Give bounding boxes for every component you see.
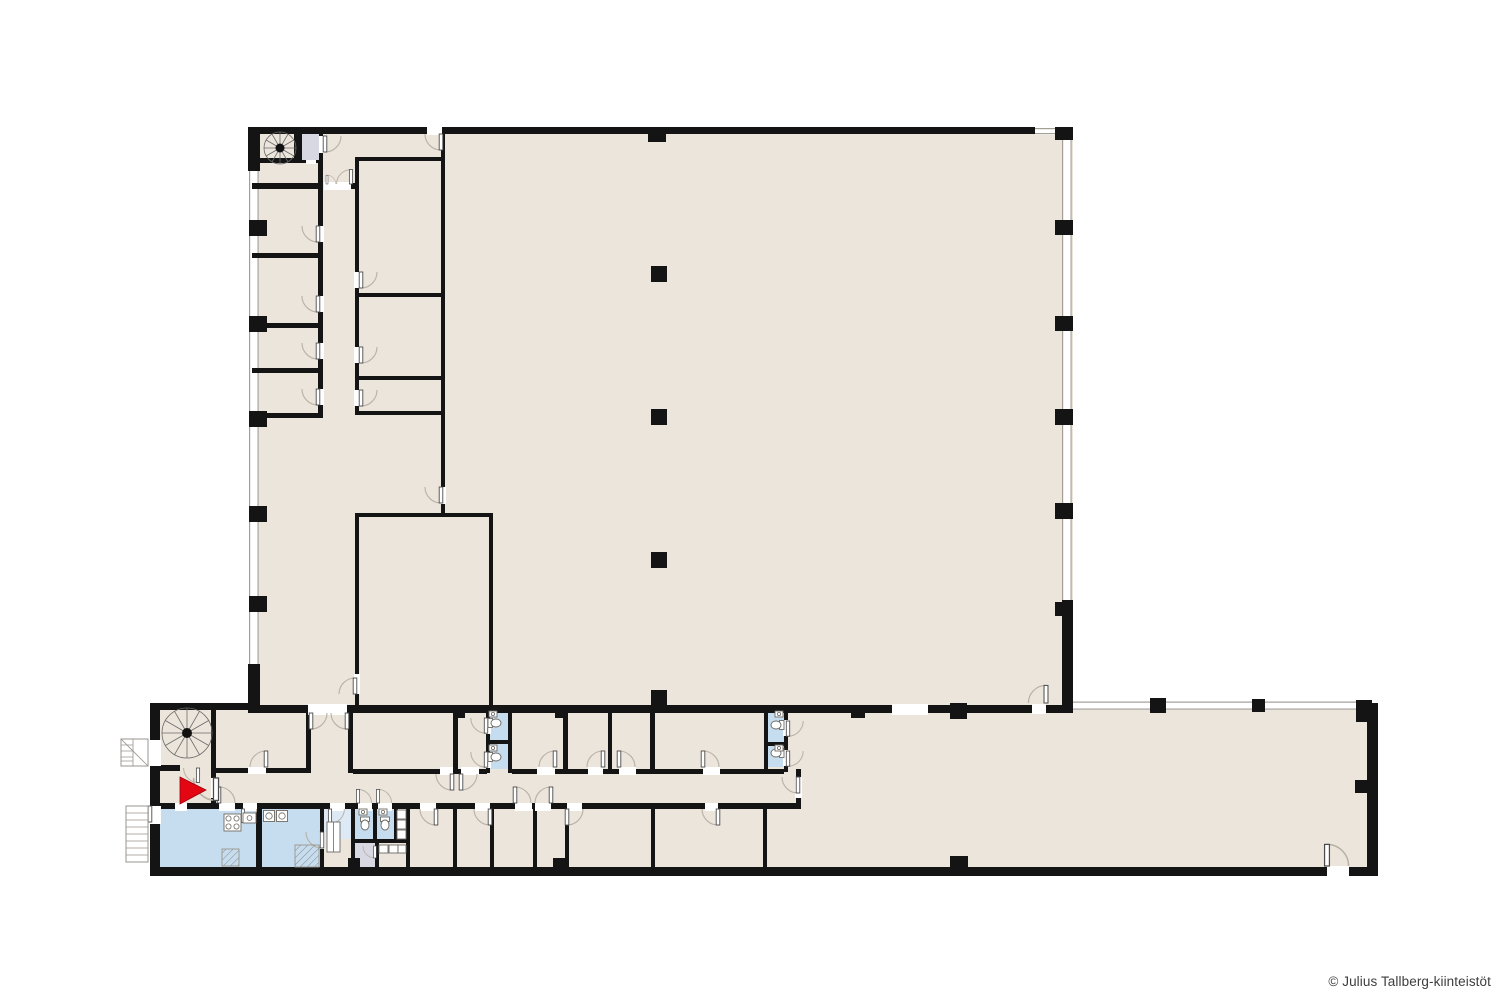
external-stairs-upper bbox=[121, 739, 148, 766]
shower-hatch-icon bbox=[295, 845, 319, 867]
elevator-shaft bbox=[302, 134, 319, 160]
bench-icon bbox=[327, 822, 340, 852]
spiral-staircase-main bbox=[264, 132, 296, 164]
copyright-text: © Julius Tallberg-kiinteistöt bbox=[1328, 974, 1491, 989]
stove-icon bbox=[224, 814, 241, 831]
spiral-staircase-entrance bbox=[162, 708, 212, 758]
kitchen-counter-icon bbox=[243, 813, 256, 823]
shower-hatch-icon bbox=[222, 849, 239, 866]
external-stairs-lower bbox=[126, 806, 148, 862]
floorplan-svg bbox=[0, 0, 1500, 1000]
floor-plan-page: © Julius Tallberg-kiinteistöt bbox=[0, 0, 1500, 1000]
